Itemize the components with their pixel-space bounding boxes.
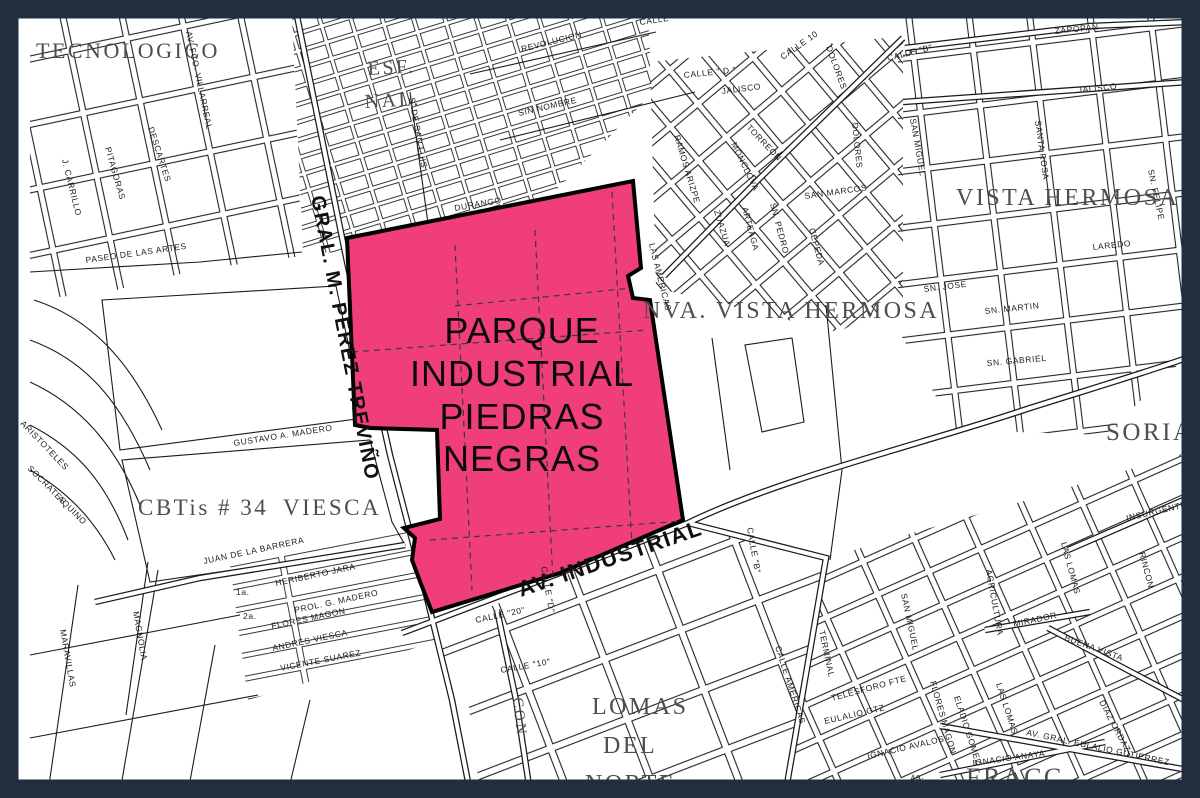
park-name-line-3: PIEDRAS [439,396,604,437]
area-label-lomas: LOMAS [592,694,689,720]
street-label-1a: 1a. [236,587,250,597]
area-label-esf: ESF. [367,56,416,80]
area-label-nva-vista-hermosa: NVA. VISTA HERMOSA [643,298,939,324]
map-screenshot: PARQUE INDUSTRIAL PIEDRAS NEGRAS TECNOLO… [0,0,1200,798]
street-label-2a: 2a. [243,611,257,621]
city-map: PARQUE INDUSTRIAL PIEDRAS NEGRAS TECNOLO… [0,0,1200,798]
area-label-del: DEL [603,733,657,759]
area-label-viesca: VIESCA [283,495,381,520]
park-name-line-4: NEGRAS [443,438,601,479]
park-name-line-2: INDUSTRIAL [410,353,634,394]
park-name-line-1: PARQUE [444,310,599,351]
area-label-vista-hermosa: VISTA HERMOSA [956,185,1179,211]
area-label-cbtis-34: CBTis # 34 [138,495,268,520]
